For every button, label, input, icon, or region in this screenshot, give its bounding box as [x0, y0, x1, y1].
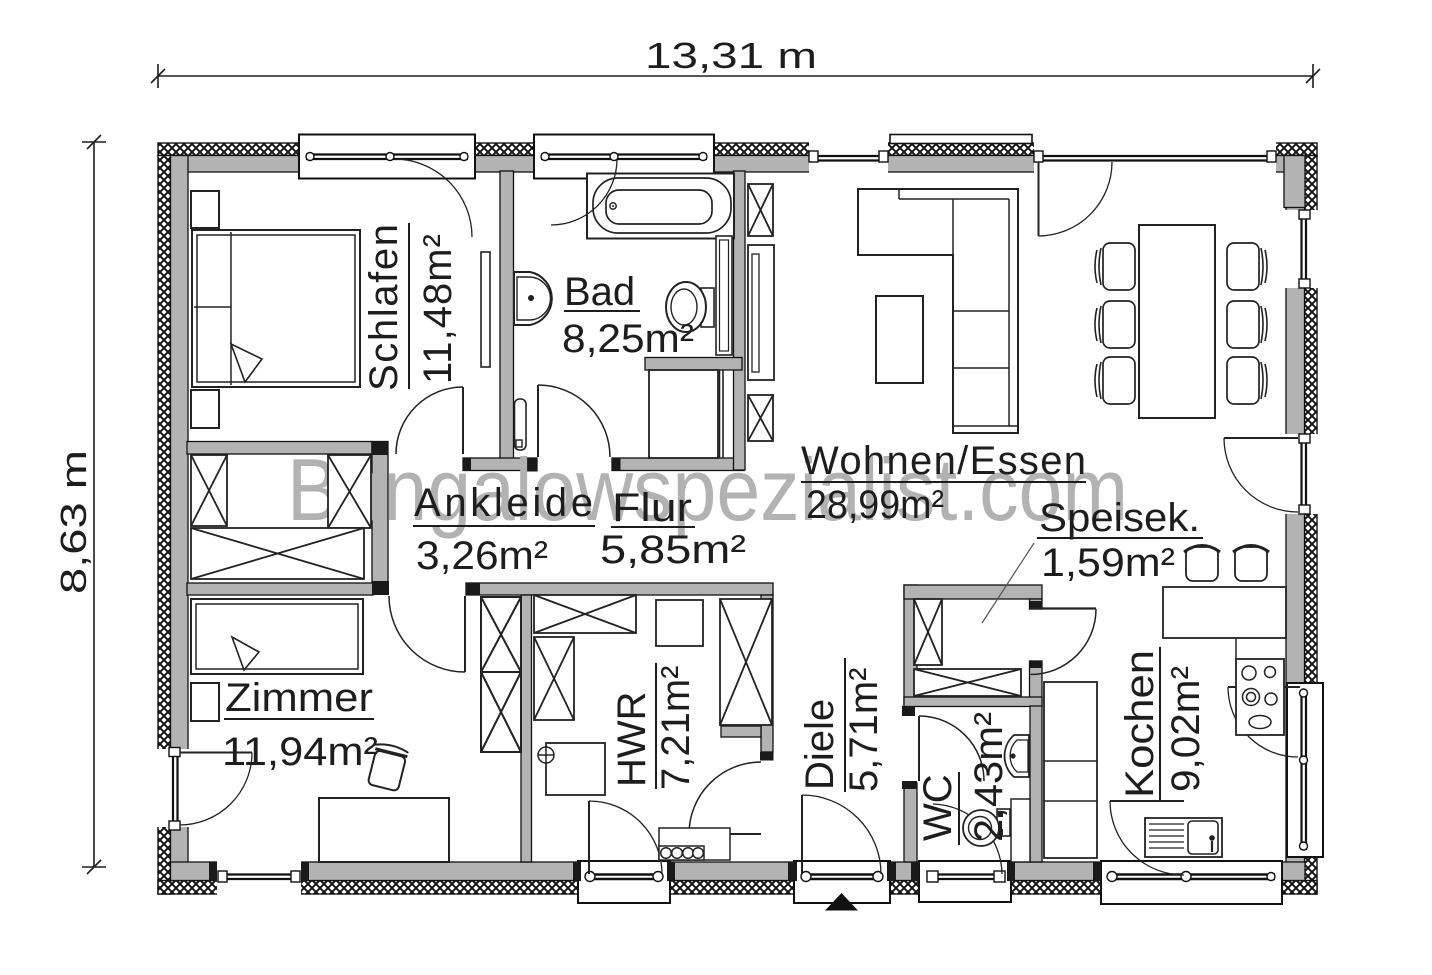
svg-text:11,94m²: 11,94m²	[222, 730, 378, 774]
svg-text:WC: WC	[916, 774, 960, 841]
svg-text:5,71m²: 5,71m²	[842, 668, 886, 793]
svg-text:13,31 m: 13,31 m	[645, 35, 817, 76]
svg-text:Kochen: Kochen	[1118, 650, 1162, 798]
svg-text:Speisek.: Speisek.	[1039, 496, 1200, 540]
svg-text:1,59m²: 1,59m²	[1041, 541, 1175, 585]
svg-text:Schlafen: Schlafen	[362, 224, 406, 391]
svg-text:2,43m²: 2,43m²	[967, 712, 1011, 842]
svg-text:Bad: Bad	[564, 270, 635, 314]
svg-text:Wohnen/Essen: Wohnen/Essen	[801, 439, 1086, 483]
svg-text:8,63 m: 8,63 m	[53, 450, 94, 594]
svg-text:Diele: Diele	[798, 699, 842, 790]
svg-text:HWR: HWR	[610, 691, 654, 787]
svg-text:Zimmer: Zimmer	[225, 676, 373, 720]
svg-text:7,21m²: 7,21m²	[654, 666, 698, 791]
svg-text:28,99m²: 28,99m²	[806, 483, 944, 527]
svg-text:8,25m²: 8,25m²	[562, 317, 694, 361]
svg-text:Flur: Flur	[612, 486, 692, 530]
svg-text:5,85m²: 5,85m²	[600, 528, 746, 572]
svg-text:11,48m²: 11,48m²	[416, 234, 460, 384]
svg-text:9,02m²: 9,02m²	[1164, 666, 1208, 792]
svg-text:3,26m²: 3,26m²	[416, 534, 548, 578]
